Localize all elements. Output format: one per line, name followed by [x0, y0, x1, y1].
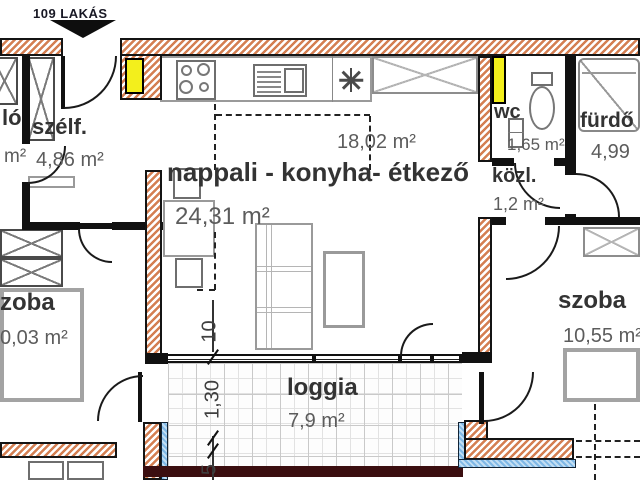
wall-junction-left	[145, 353, 168, 364]
overhang-dashed-line	[594, 404, 596, 480]
burner-icon	[199, 82, 209, 92]
wall-vestibule-bottom-left	[22, 222, 80, 230]
burner-icon	[179, 80, 193, 94]
label-bedroom-right: szoba	[558, 287, 626, 315]
table-line	[266, 225, 267, 348]
dimension-wall: 10	[199, 310, 222, 354]
shaft-kitchen	[125, 58, 144, 94]
wall-bedroom-right-top	[545, 217, 640, 225]
kitchen-zone-dash	[214, 232, 216, 290]
label-wc: wc	[494, 101, 521, 124]
label-vestibule: szélf.	[32, 114, 87, 140]
table-line	[257, 271, 311, 272]
kitchen-zone-dash	[197, 289, 215, 291]
wall-living-right-lower	[478, 217, 492, 357]
area-bedroom-right: 10,55 m²	[563, 325, 640, 348]
area-wc: 1,65 m²	[507, 135, 565, 155]
wall-vestibule-left-upper	[22, 56, 30, 144]
toilet-tank-icon	[531, 72, 553, 86]
railing-dashed-line	[576, 456, 640, 458]
bedroom-right-balcony-door-arc	[484, 372, 534, 422]
side-table	[175, 258, 203, 288]
table-line	[257, 266, 311, 267]
bathroom-door-arc	[576, 173, 620, 217]
area-bathroom: 4,99	[591, 141, 630, 164]
area-hall-clipped: m²	[4, 146, 26, 168]
wall-living-right-upper	[478, 56, 492, 162]
area-kitchen-zone: 18,02 m²	[337, 131, 416, 154]
shaft-wc	[492, 56, 506, 104]
railing-box	[28, 461, 64, 480]
dimension-loggia-depth: 1,30	[202, 371, 225, 429]
entry-door-arc	[64, 56, 117, 109]
sink-drainboard-icon	[257, 68, 281, 93]
label-bedroom-left: zoba	[0, 289, 55, 317]
label-corridor: közl.	[492, 165, 536, 188]
entry-arrow-icon	[50, 20, 116, 38]
wall-corridor-bottom-left	[492, 217, 506, 225]
label-living: nappali - konyha- étkező	[167, 157, 469, 188]
area-vestibule: 4,86 m²	[36, 149, 104, 172]
wardrobe-bedroom-left-upper	[0, 229, 63, 258]
bathtub-waterline	[582, 72, 636, 74]
floor-plan: 109 LAKÁS	[0, 0, 640, 480]
kitchen-zone-dash	[216, 114, 370, 116]
bedroom-left-balcony-door-arc	[97, 375, 143, 421]
table-line	[257, 312, 311, 313]
wall-top	[120, 38, 640, 56]
wall-wc-bathroom	[565, 56, 576, 166]
bedroom-left-door-arc	[78, 229, 112, 263]
apartment-label: 109 LAKÁS	[33, 6, 108, 21]
label-bathroom: fürdő	[580, 109, 634, 133]
wall-loggia-right-h	[464, 438, 574, 460]
basin-line	[508, 132, 524, 133]
wardrobe-bedroom-left-lower	[0, 258, 63, 287]
wall-vestibule-left-lower	[22, 182, 30, 227]
wardrobe-bedroom-right	[583, 227, 640, 257]
wardrobe-living	[372, 56, 478, 94]
toilet-bowl-icon	[529, 86, 555, 130]
counter-divider	[332, 56, 333, 102]
sofa	[323, 251, 365, 328]
loggia-door-arc	[400, 323, 433, 356]
area-bedroom-left: 0,03 m²	[0, 327, 68, 350]
area-corridor: 1,2 m²	[493, 194, 544, 215]
wardrobe-hall-clipped	[0, 57, 18, 105]
burner-icon	[181, 65, 192, 76]
label-loggia: loggia	[287, 374, 358, 402]
wall-bedroom-left-bottom	[0, 442, 117, 458]
area-loggia: 7,9 m²	[288, 410, 345, 433]
window-mullion	[160, 354, 164, 363]
burner-icon	[197, 63, 210, 76]
wall-corridor-bathroom-upper	[565, 166, 576, 175]
appliance-asterisk-icon	[339, 68, 363, 92]
bedroom-right-door-arc	[506, 226, 560, 280]
window-mullion	[459, 354, 463, 363]
wall-top-left	[0, 38, 63, 56]
railing-dashed-line	[576, 440, 640, 442]
railing-box	[67, 461, 104, 480]
dining-table	[255, 223, 313, 350]
window-mullion	[312, 354, 316, 363]
insulation-loggia-right-h	[458, 459, 576, 468]
dimension-parapet: 5	[199, 460, 222, 480]
sink-bowl-icon	[284, 68, 304, 93]
table-line	[257, 307, 311, 308]
table-line	[271, 225, 272, 348]
slab-edge	[143, 466, 463, 477]
wall-living-left	[145, 170, 162, 360]
bed-bedroom-right	[563, 348, 640, 402]
label-hall-clipped: ló	[2, 105, 22, 131]
area-living: 24,31 m²	[175, 203, 270, 231]
wall-junction-right	[462, 352, 492, 363]
